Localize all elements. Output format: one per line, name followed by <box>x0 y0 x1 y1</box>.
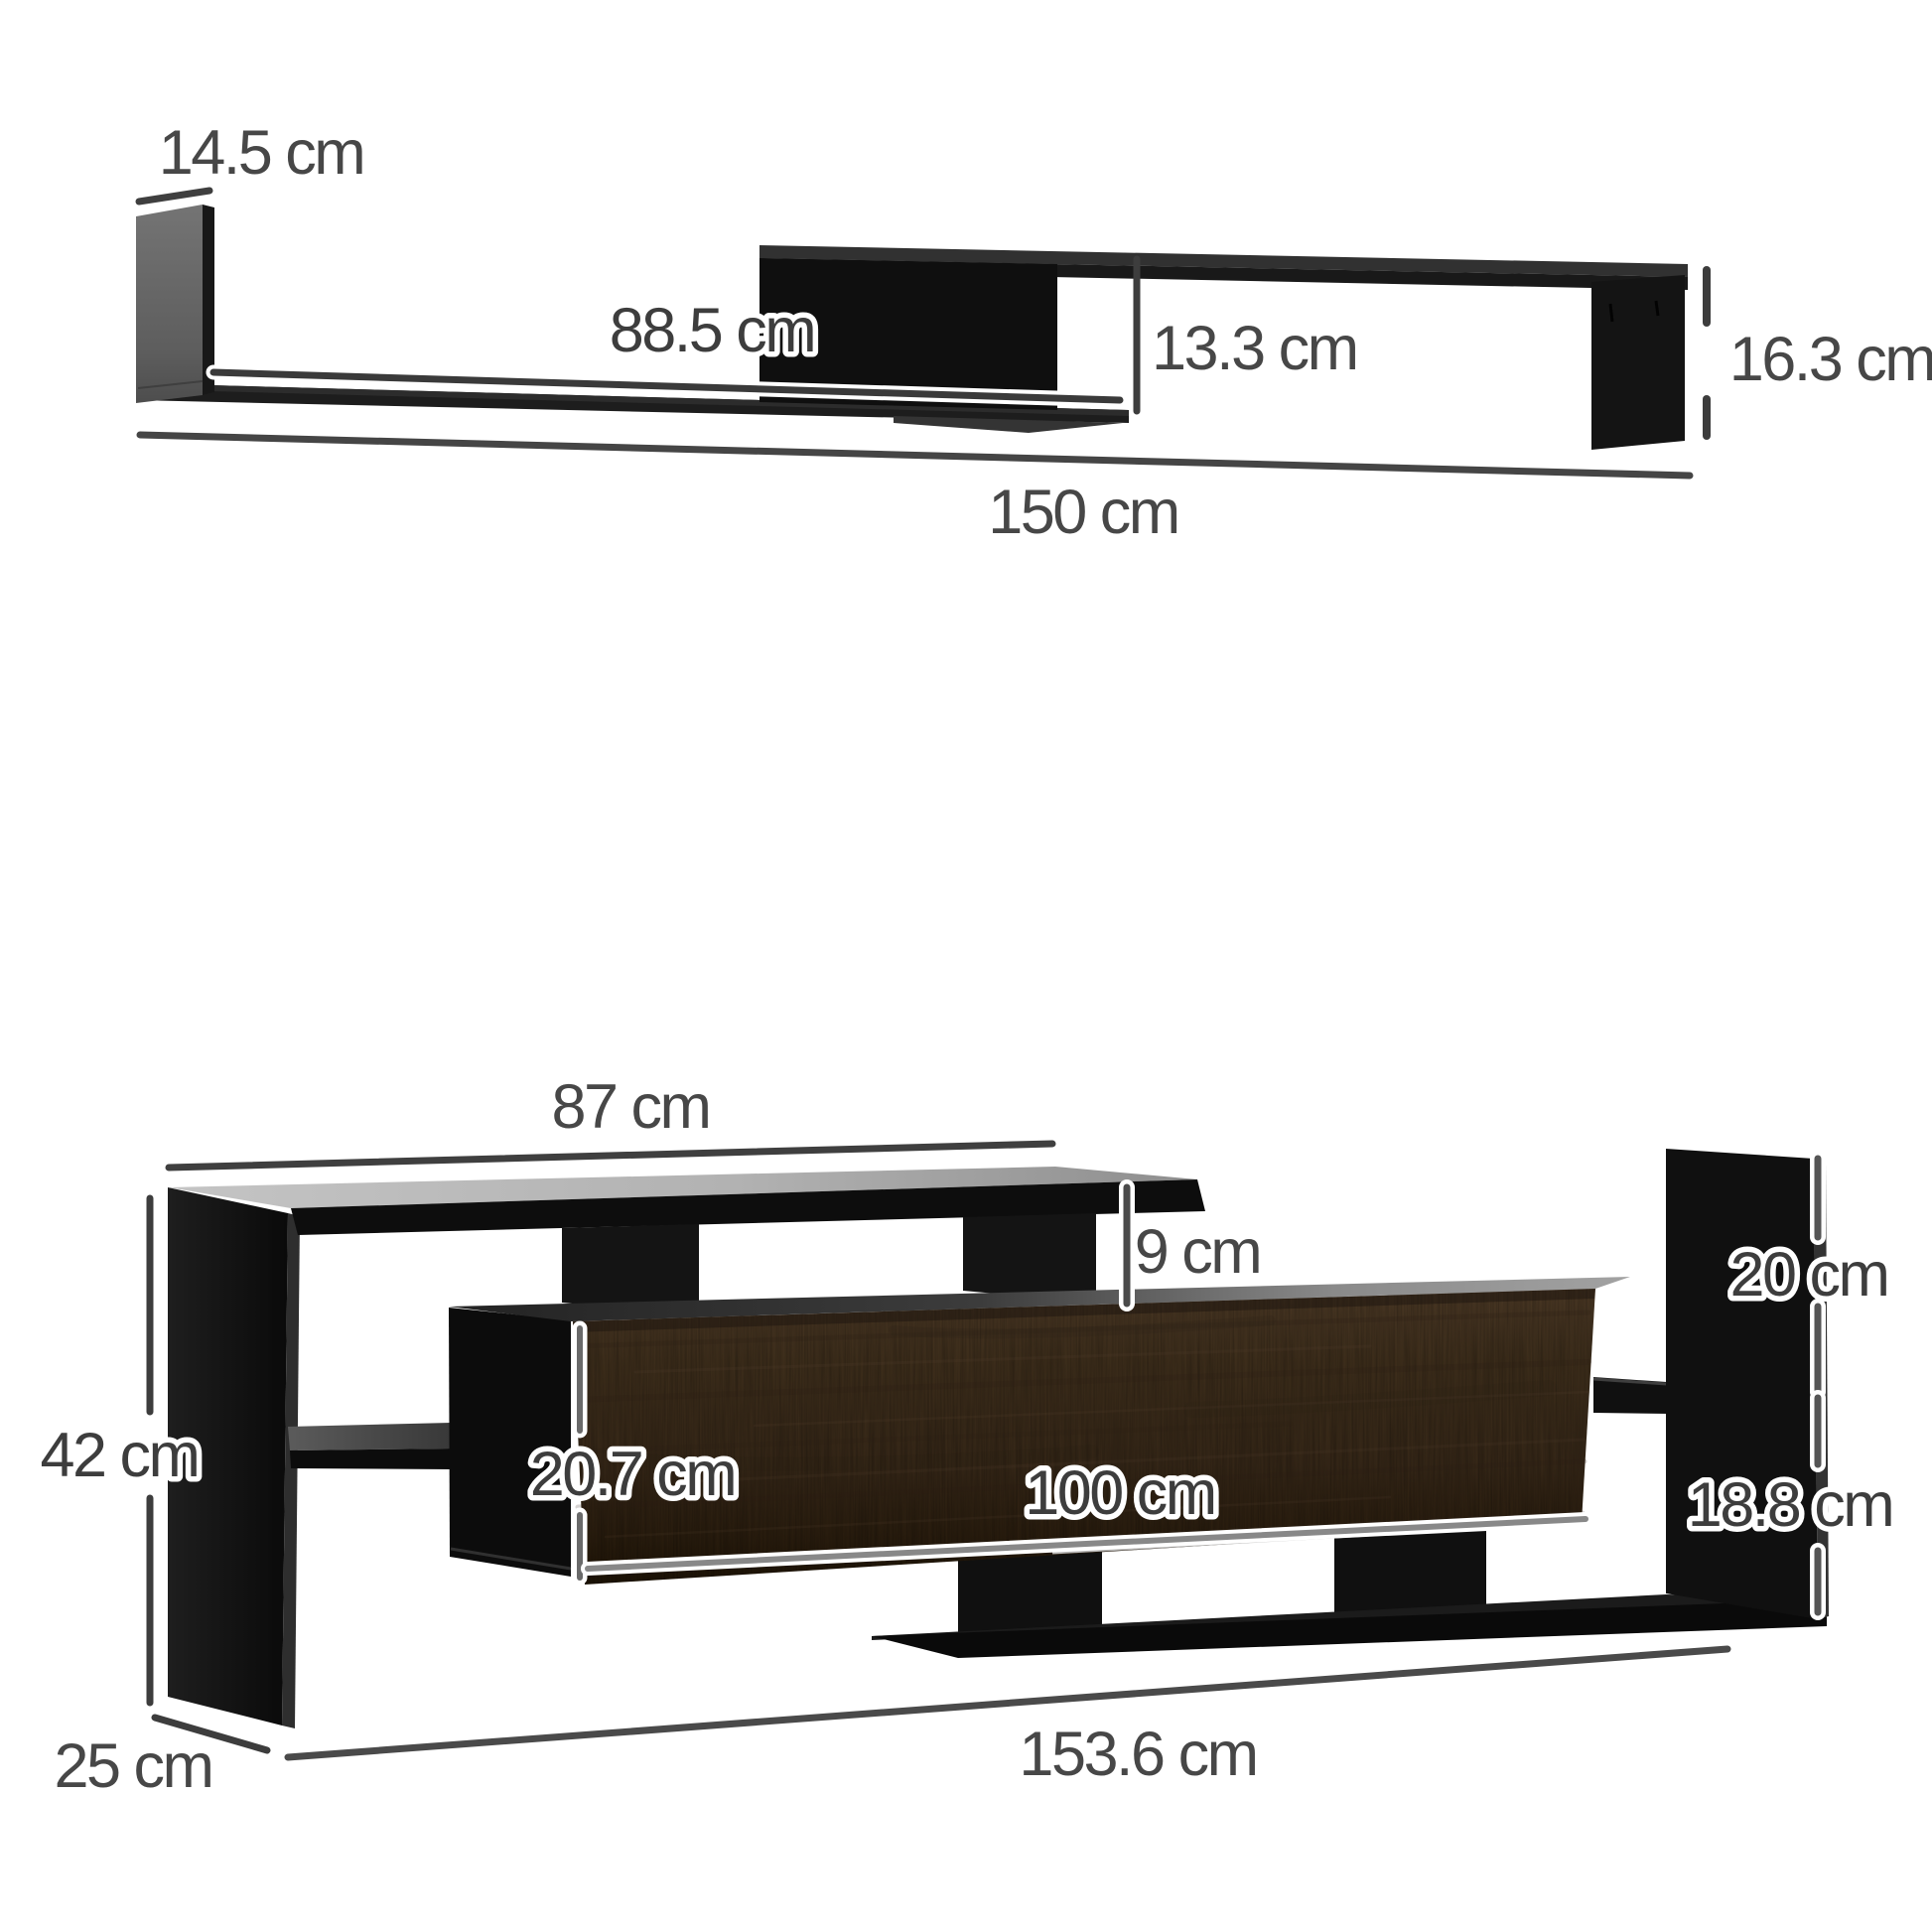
svg-text:88.5 cm: 88.5 cm <box>610 296 815 365</box>
svg-text:9 cm: 9 cm <box>1135 1217 1261 1287</box>
svg-text:153.6 cm: 153.6 cm <box>1019 1720 1256 1789</box>
svg-text:100 cm: 100 cm <box>1025 1458 1215 1528</box>
svg-text:87 cm: 87 cm <box>551 1072 709 1142</box>
svg-text:150 cm: 150 cm <box>988 478 1178 547</box>
svg-text:20 cm: 20 cm <box>1729 1240 1887 1310</box>
svg-text:25 cm: 25 cm <box>54 1731 211 1801</box>
svg-text:14.5 cm: 14.5 cm <box>159 118 364 188</box>
svg-text:13.3 cm: 13.3 cm <box>1152 314 1357 383</box>
svg-text:20.7 cm: 20.7 cm <box>530 1440 736 1509</box>
svg-text:16.3 cm: 16.3 cm <box>1729 325 1932 394</box>
svg-text:42 cm: 42 cm <box>40 1421 198 1490</box>
svg-text:18.8 cm: 18.8 cm <box>1688 1470 1893 1540</box>
